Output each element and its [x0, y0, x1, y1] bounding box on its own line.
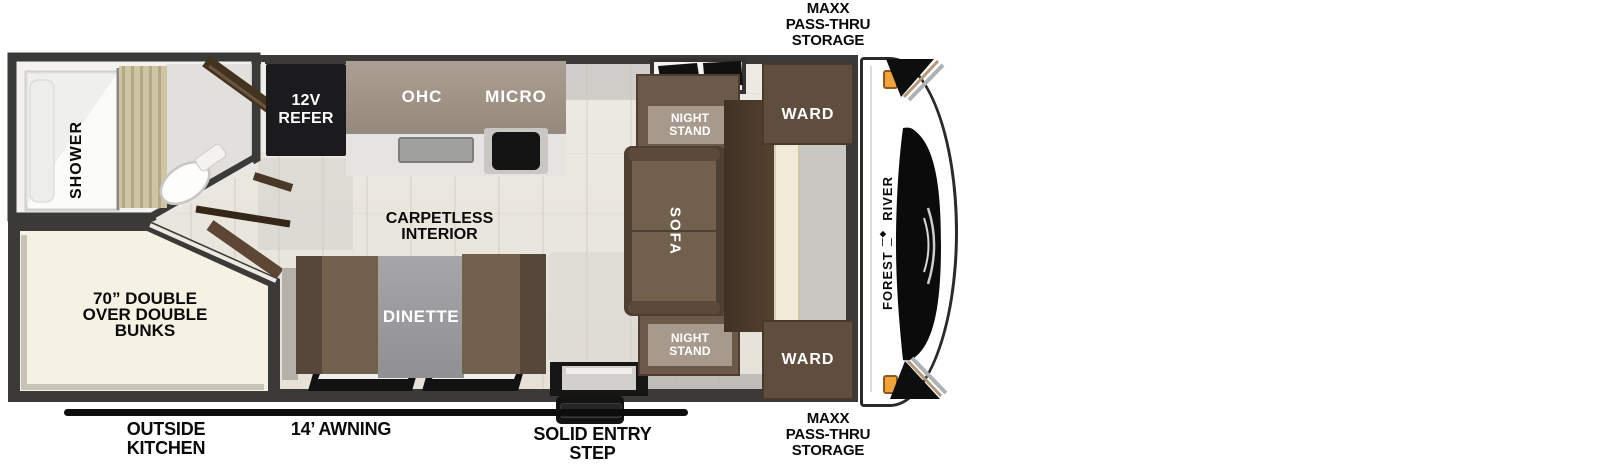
storage-top-line3: STORAGE: [744, 33, 912, 49]
refer-label-line1: 12V: [278, 92, 333, 110]
night-stand-top-plate: NIGHT STAND: [648, 106, 732, 144]
awning-bar: [64, 409, 688, 416]
carpetless-line1: CARPETLESS: [357, 211, 522, 227]
entry-door: [550, 362, 648, 396]
label-storage-bottom: MAXX PASS-THRU STORAGE: [744, 411, 912, 459]
brand-forest: FOREST: [880, 251, 895, 310]
storage-bottom-line2: PASS-THRU: [744, 427, 912, 443]
forest-river-logo-icon: —◆—: [878, 226, 896, 247]
dinette-table: DINETTE: [378, 256, 464, 378]
shower-label: SHOWER: [68, 100, 88, 220]
night-stand-bottom-label-line2: STAND: [669, 345, 710, 358]
entry-step-line1: SOLID ENTRY: [505, 425, 680, 444]
overhead-cabinet: OHC MICRO: [346, 61, 566, 132]
sofa-label: SOFA: [624, 146, 726, 316]
stove: [492, 132, 540, 170]
wardrobe-top: WARD: [762, 63, 854, 145]
brand-mark: FOREST —◆— RIVER: [876, 176, 898, 310]
ward-top-label: WARD: [782, 106, 835, 124]
label-entry-step: SOLID ENTRY STEP: [505, 425, 680, 463]
wardrobe-bottom: WARD: [762, 320, 854, 400]
dinette-bench-left-back: [296, 256, 322, 374]
storage-bottom-line1: MAXX: [744, 411, 912, 427]
storage-top-line1: MAXX: [744, 1, 912, 17]
brand-river: RIVER: [880, 176, 895, 221]
storage-bottom-line3: STORAGE: [744, 443, 912, 459]
kitchen-sink: [398, 137, 474, 163]
sofa: SOFA: [624, 146, 726, 316]
ward-bottom-label: WARD: [782, 351, 835, 369]
murphy-bed-mattress: [774, 126, 800, 332]
entry-step-line2: STEP: [505, 444, 680, 463]
bunks-label: 70” DOUBLE OVER DOUBLE BUNKS: [55, 291, 235, 339]
carpetless-label: CARPETLESS INTERIOR: [357, 211, 522, 243]
dinette-bench-left: [296, 256, 380, 374]
dinette-label: DINETTE: [383, 307, 459, 327]
floorplan-canvas: 12V REFER OHC MICRO NIGHT STAND SOFA NIG…: [0, 0, 1600, 466]
label-awning: 14’ AWNING: [266, 419, 416, 440]
storage-top-line2: PASS-THRU: [744, 17, 912, 33]
outside-kitchen-line2: KITCHEN: [92, 439, 240, 458]
ohc-label: OHC: [390, 87, 454, 107]
refer-label-line2: REFER: [278, 110, 333, 128]
shower-curtain: [119, 66, 167, 208]
night-stand-top-label-line2: STAND: [669, 125, 710, 138]
micro-label: MICRO: [474, 87, 558, 107]
night-stand-bottom-plate: NIGHT STAND: [648, 324, 732, 366]
dinette-bench-right-back: [520, 254, 546, 374]
carpetless-line2: INTERIOR: [357, 227, 522, 243]
dinette-bench-right: [462, 254, 546, 374]
bunks-line3: BUNKS: [55, 323, 235, 339]
label-outside-kitchen: OUTSIDE KITCHEN: [92, 420, 240, 458]
outside-kitchen-line1: OUTSIDE: [92, 420, 240, 439]
refrigerator: 12V REFER: [266, 64, 346, 156]
label-storage-top: MAXX PASS-THRU STORAGE: [744, 1, 912, 49]
